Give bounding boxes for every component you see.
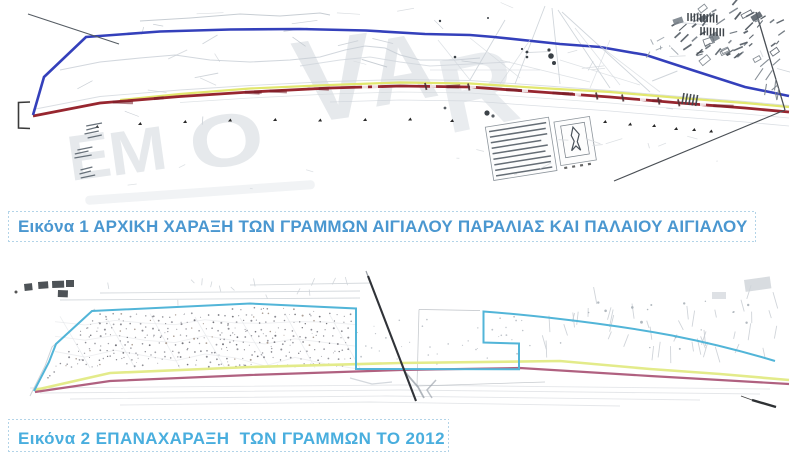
svg-text:O: O xyxy=(182,94,270,189)
svg-text:M: M xyxy=(104,112,171,189)
